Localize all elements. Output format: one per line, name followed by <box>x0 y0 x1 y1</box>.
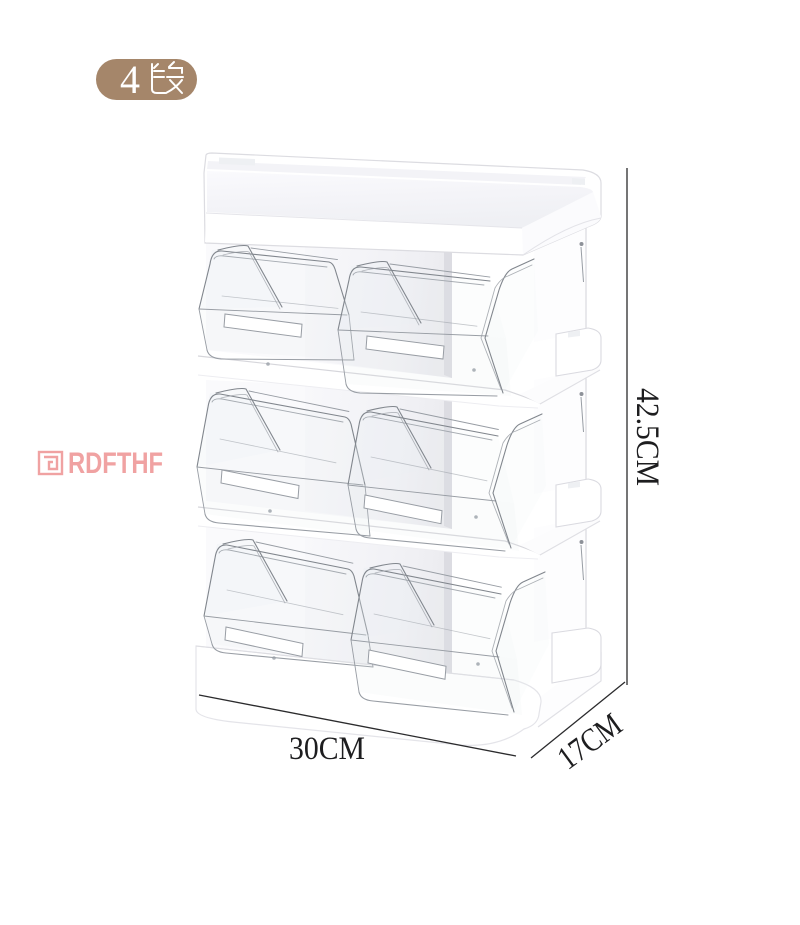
svg-text:4: 4 <box>120 57 140 102</box>
svg-text:30CM: 30CM <box>289 731 365 767</box>
svg-text:RDFTHF: RDFTHF <box>68 447 163 480</box>
svg-text:42.5CM: 42.5CM <box>629 388 665 486</box>
